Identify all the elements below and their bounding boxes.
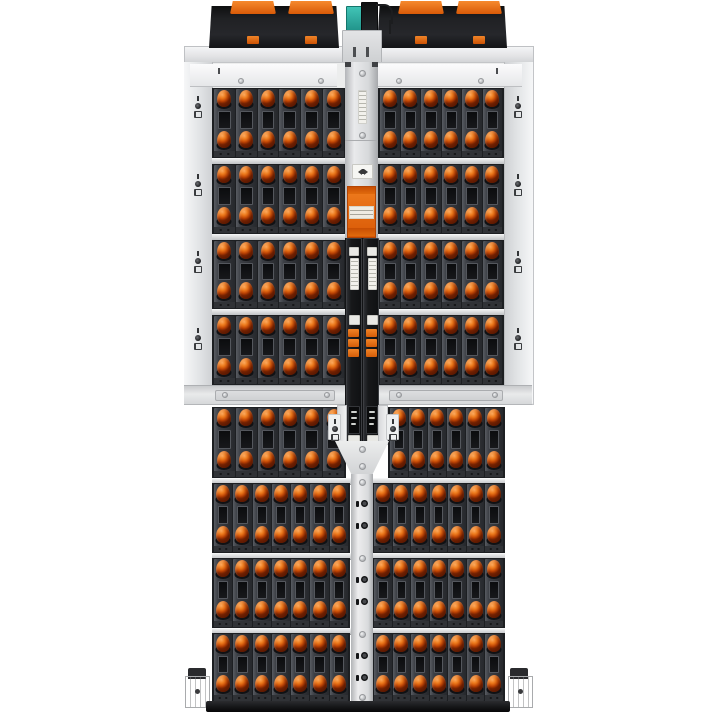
drive-carrier-foot [390,471,408,477]
drive-carrier-window [218,111,231,129]
drive-latch [462,281,482,302]
drive-latch [258,89,279,110]
drive-carrier [462,89,482,157]
drive-latch-knob [383,358,397,375]
drive-carrier-foot [233,546,251,552]
drive-latch-knob [332,485,346,502]
drive-latch-knob [305,282,319,299]
drive-carrier-window [334,581,344,599]
spine-latch-indicator-icon [356,576,368,583]
drive-carrier-window [434,656,444,673]
drive-carrier-window [218,187,231,205]
drive-latch-knob [313,635,327,652]
drive-carrier [409,408,427,477]
drive-carrier-window [384,263,396,281]
drive-row-block [212,483,350,553]
screw-icon [318,78,324,84]
drive-carrier-foot [466,471,484,477]
drive-latch [214,241,235,262]
drive-latch [462,357,482,378]
drive-latch [258,281,279,302]
drive-latch-knob [305,317,319,334]
drive-latch [214,600,232,621]
drive-carrier-foot [411,621,429,627]
header-slot [496,68,498,74]
row-lock-indicator-icon [513,174,522,196]
drive-carrier-window [218,506,228,524]
drive-carrier [401,241,421,309]
orange-clip-icon [456,1,502,14]
spine-latch-indicator-icon [356,674,368,681]
header-panel-left [190,64,337,87]
drive-latch-knob [332,601,346,618]
drive-carrier-window [240,430,253,449]
drive-carrier [428,408,446,477]
drive-carrier [421,316,441,384]
drive-latch [214,525,232,546]
drive-latch-knob [469,485,483,502]
drive-latch [401,165,421,186]
drive-latch [421,316,441,337]
drive-latch-knob [217,358,231,375]
drive-latch [272,600,290,621]
drive-carrier [421,89,441,157]
drive-carrier-foot [421,151,441,157]
drive-row-block [372,483,505,553]
drive-bank-b3-right [372,558,505,628]
drive-latch [401,130,421,151]
drive-latch-knob [235,675,249,692]
drive-latch-knob [383,242,397,259]
drive-carrier [236,89,257,157]
drive-bank-top-left [212,88,346,385]
drive-carrier [279,408,300,477]
drive-carrier-foot [485,471,503,477]
drive-carrier [467,559,485,627]
drive-carrier [401,165,421,233]
drive-latch [279,241,300,262]
drive-latch [447,450,465,471]
drive-carrier-window [314,656,324,673]
drive-carrier [442,89,462,157]
drive-latch-knob [261,282,275,299]
drive-carrier [411,634,429,701]
drive-latch-knob [293,526,307,543]
row-lock-indicator-icon [193,174,202,196]
drive-carrier-window [425,111,437,129]
drive-latch-knob [239,317,253,334]
drive-carrier-window [295,581,305,599]
drive-latch-knob [274,526,288,543]
drive-row-block [212,240,346,310]
drive-latch-knob [432,526,446,543]
drive-carrier-foot [258,151,279,157]
drive-latch [390,450,408,471]
drive-carrier-foot [214,471,235,477]
drive-latch-knob [255,675,269,692]
drive-carrier-foot [380,151,400,157]
drive-carrier-foot [393,621,411,627]
drive-carrier-foot [272,546,290,552]
drive-latch-knob [444,131,458,148]
drive-carrier-window [240,111,253,129]
drive-carrier-window [487,263,499,281]
drive-latch [330,559,348,580]
drive-latch [409,408,427,429]
drive-carrier-foot [380,378,400,384]
drive-carrier [279,89,300,157]
drive-latch [393,674,411,695]
drive-carrier-foot [279,378,300,384]
drive-latch [393,525,411,546]
drive-latch [483,281,503,302]
drive-carrier-foot [393,546,411,552]
drive-latch [323,241,344,262]
drive-latch-knob [413,485,427,502]
drive-latch-knob [261,131,275,148]
drive-latch [236,165,257,186]
drive-carrier-window [489,656,499,673]
drive-carrier [258,89,279,157]
drive-carrier-window [305,430,318,449]
drive-latch [401,241,421,262]
drive-carrier-foot [253,621,271,627]
drive-carrier [462,316,482,384]
drive-latch [301,450,322,471]
drive-latch [380,357,400,378]
drive-latch-knob [239,166,253,183]
drive-latch [483,206,503,227]
drive-latch-knob [376,635,390,652]
drive-carrier-foot [462,302,482,308]
drive-carrier [279,316,300,384]
drive-latch [485,674,503,695]
drive-latch-knob [217,166,231,183]
drive-latch-knob [485,166,499,183]
drive-latch [401,281,421,302]
drive-carrier [279,241,300,309]
drive-latch-knob [449,451,463,468]
drive-latch-knob [332,635,346,652]
drive-latch-knob [413,526,427,543]
drive-latch-knob [283,242,297,259]
drive-latch [442,89,462,110]
drive-latch-knob [283,317,297,334]
drive-carrier-window [327,111,340,129]
drive-carrier-window [425,263,437,281]
spine-lower-strip [351,474,373,703]
drive-latch-knob [444,207,458,224]
drive-carrier-window [432,430,442,449]
cable-drop [389,20,391,34]
drive-carrier-foot [467,621,485,627]
drive-latch [374,559,392,580]
drive-carrier-window [471,656,481,673]
drive-carrier [430,484,448,552]
drive-carrier-window [334,506,344,524]
drive-carrier-foot [258,471,279,477]
drive-carrier [401,316,421,384]
drive-carrier [214,484,232,552]
drive-carrier [374,559,392,627]
row-lock-indicator-icon [513,251,522,273]
drive-latch-knob [468,451,482,468]
drive-latch-knob [432,560,446,577]
drive-latch-knob [332,526,346,543]
drive-carrier-window [434,581,444,599]
drive-carrier [485,634,503,701]
drive-latch-knob [376,526,390,543]
spine-canister-left [346,238,362,445]
drive-latch [253,559,271,580]
drive-latch [258,241,279,262]
spine-label [358,90,367,124]
drive-latch [380,89,400,110]
drive-latch [310,634,328,655]
orange-tab [366,349,377,357]
drive-latch [330,634,348,655]
drive-latch-knob [327,207,341,224]
drive-latch-knob [293,560,307,577]
drive-latch [258,408,279,429]
drive-carrier [236,241,257,309]
drive-latch-knob [485,282,499,299]
drive-latch [380,206,400,227]
drive-latch-knob [394,560,408,577]
drive-carrier-window [262,263,275,281]
drive-carrier-foot [421,302,441,308]
drive-latch [236,316,257,337]
drive-latch [374,674,392,695]
drive-latch-knob [255,485,269,502]
drive-latch-knob [274,560,288,577]
drive-carrier-window [378,506,388,524]
drive-carrier-foot [258,378,279,384]
drive-latch-knob [293,675,307,692]
drive-carrier [330,559,348,627]
drive-latch [233,559,251,580]
drive-latch [214,408,235,429]
drive-latch-knob [261,358,275,375]
drive-carrier-window [283,111,296,129]
drive-carrier-foot [374,621,392,627]
orange-band [348,228,375,236]
drive-latch-knob [487,601,501,618]
drive-carrier-foot [253,546,271,552]
drive-latch [233,600,251,621]
drive-carrier-foot [401,378,421,384]
drive-carrier-window [470,430,480,449]
drive-latch [323,281,344,302]
drive-latch-knob [465,242,479,259]
drive-carrier [466,408,484,477]
orange-clip-icon [398,1,444,14]
drive-latch-knob [485,242,499,259]
drive-row-block [372,633,505,702]
drive-carrier-window [237,581,247,599]
drive-row-block [388,407,505,478]
drive-latch-knob [413,635,427,652]
drive-latch-knob [450,635,464,652]
drive-carrier-window [276,656,286,673]
drive-latch [214,206,235,227]
drive-carrier [374,634,392,701]
drive-carrier-window [405,263,417,281]
drive-latch-knob [432,675,446,692]
drive-latch [421,130,441,151]
drive-latch-knob [216,526,230,543]
drive-latch [323,450,344,471]
drive-latch [401,357,421,378]
drive-bank-b4-right [372,633,505,702]
drive-latch [310,674,328,695]
drive-latch-knob [376,675,390,692]
orange-tab [366,329,377,337]
drive-latch [462,316,482,337]
drive-latch-knob [392,451,406,468]
drive-latch-knob [411,409,425,426]
drive-latch-knob [261,409,275,426]
drive-latch [323,89,344,110]
drive-carrier-foot [430,621,448,627]
drive-carrier-window [314,506,324,524]
drive-latch [236,130,257,151]
drive-latch-knob [217,317,231,334]
drive-latch [258,206,279,227]
drive-latch-knob [217,242,231,259]
drive-carrier-window [452,581,462,599]
drive-latch-knob [305,166,319,183]
drive-row-block [378,88,504,158]
drive-latch-knob [216,675,230,692]
orange-handle-icon [247,36,259,44]
drive-carrier-foot [467,546,485,552]
drive-carrier-foot [442,151,462,157]
drive-latch [291,600,309,621]
drive-latch-knob [332,675,346,692]
drive-latch [393,600,411,621]
drive-carrier [291,484,309,552]
drive-carrier-foot [214,227,235,233]
drive-row-block [212,88,346,158]
screw-icon [396,78,402,84]
drive-carrier [301,316,322,384]
drive-bank-b2-left [212,483,350,553]
drive-carrier-foot [214,546,232,552]
drive-latch [380,165,400,186]
drive-latch-knob [430,409,444,426]
screw-icon [238,78,244,84]
drive-latch-knob [305,242,319,259]
drive-carrier-foot [279,302,300,308]
drive-carrier-foot [236,227,257,233]
drive-latch-knob [274,675,288,692]
drive-latch-knob [487,560,501,577]
drive-latch [462,89,482,110]
drive-latch-knob [216,635,230,652]
drive-latch [442,130,462,151]
drive-latch [485,450,503,471]
drive-latch-knob [430,451,444,468]
drive-latch-knob [487,675,501,692]
drive-carrier-window [257,506,267,524]
drive-latch [214,316,235,337]
drive-latch [467,525,485,546]
drive-carrier-foot [310,621,328,627]
drive-latch-knob [444,317,458,334]
drive-carrier-window [283,430,296,449]
drive-latch-knob [465,358,479,375]
drive-carrier [442,241,462,309]
drive-carrier [236,408,257,477]
drive-carrier [430,559,448,627]
drive-carrier [462,241,482,309]
drive-carrier-window [276,581,286,599]
drive-carrier-foot [214,151,235,157]
drive-carrier-window [305,187,318,205]
drive-latch-knob [293,485,307,502]
drive-latch [253,525,271,546]
drive-carrier-foot [401,227,421,233]
drive-carrier-window [452,506,462,524]
drive-latch [214,634,232,655]
drive-latch-knob [217,207,231,224]
spine-tab [345,62,351,67]
drive-carrier [236,316,257,384]
drive-latch-knob [485,90,499,107]
bracket-slot [353,47,356,57]
drive-carrier-foot [301,227,322,233]
drive-carrier [483,316,503,384]
drive-carrier-window [397,581,407,599]
drive-carrier-foot [330,621,348,627]
drive-latch-knob [274,635,288,652]
drive-carrier-window [446,187,458,205]
drive-latch-knob [239,409,253,426]
drive-latch-knob [327,131,341,148]
center-bracket [342,30,382,65]
drive-latch-knob [450,601,464,618]
drive-latch-knob [239,90,253,107]
drive-carrier-window [327,187,340,205]
drive-latch [236,281,257,302]
drive-latch-knob [305,131,319,148]
drive-latch [253,634,271,655]
drive-latch-knob [413,601,427,618]
drive-carrier-window [305,263,318,281]
drive-latch [448,600,466,621]
drive-latch [279,357,300,378]
drive-carrier-foot [301,471,322,477]
drive-carrier-window [314,581,324,599]
drive-carrier-window [413,430,423,449]
drive-latch [421,206,441,227]
drive-latch [401,316,421,337]
spine-tab [372,62,378,67]
drive-latch [310,559,328,580]
drive-latch-knob [394,675,408,692]
drive-latch [374,484,392,505]
drive-carrier-window [384,338,396,356]
drive-latch [421,357,441,378]
drive-latch [279,281,300,302]
drive-latch [401,89,421,110]
drive-latch-knob [216,485,230,502]
drive-latch-knob [305,90,319,107]
drive-latch-knob [239,207,253,224]
drive-latch-knob [411,451,425,468]
drive-latch-knob [394,601,408,618]
